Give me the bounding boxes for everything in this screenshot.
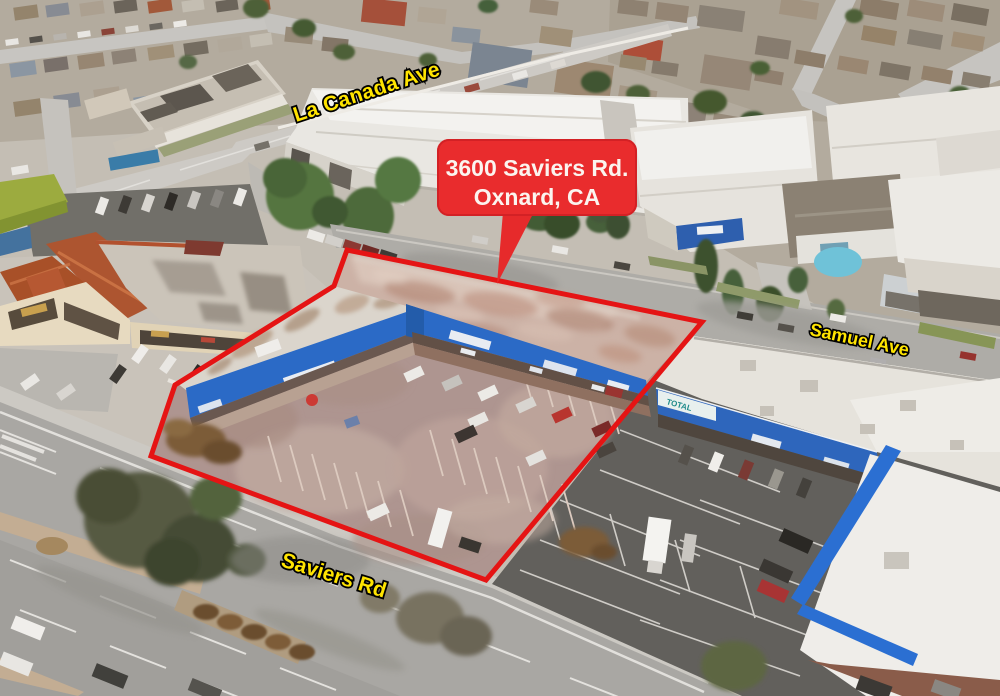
svg-text:3600 Saviers Rd.: 3600 Saviers Rd.: [446, 155, 629, 181]
svg-text:Oxnard, CA: Oxnard, CA: [474, 184, 601, 210]
